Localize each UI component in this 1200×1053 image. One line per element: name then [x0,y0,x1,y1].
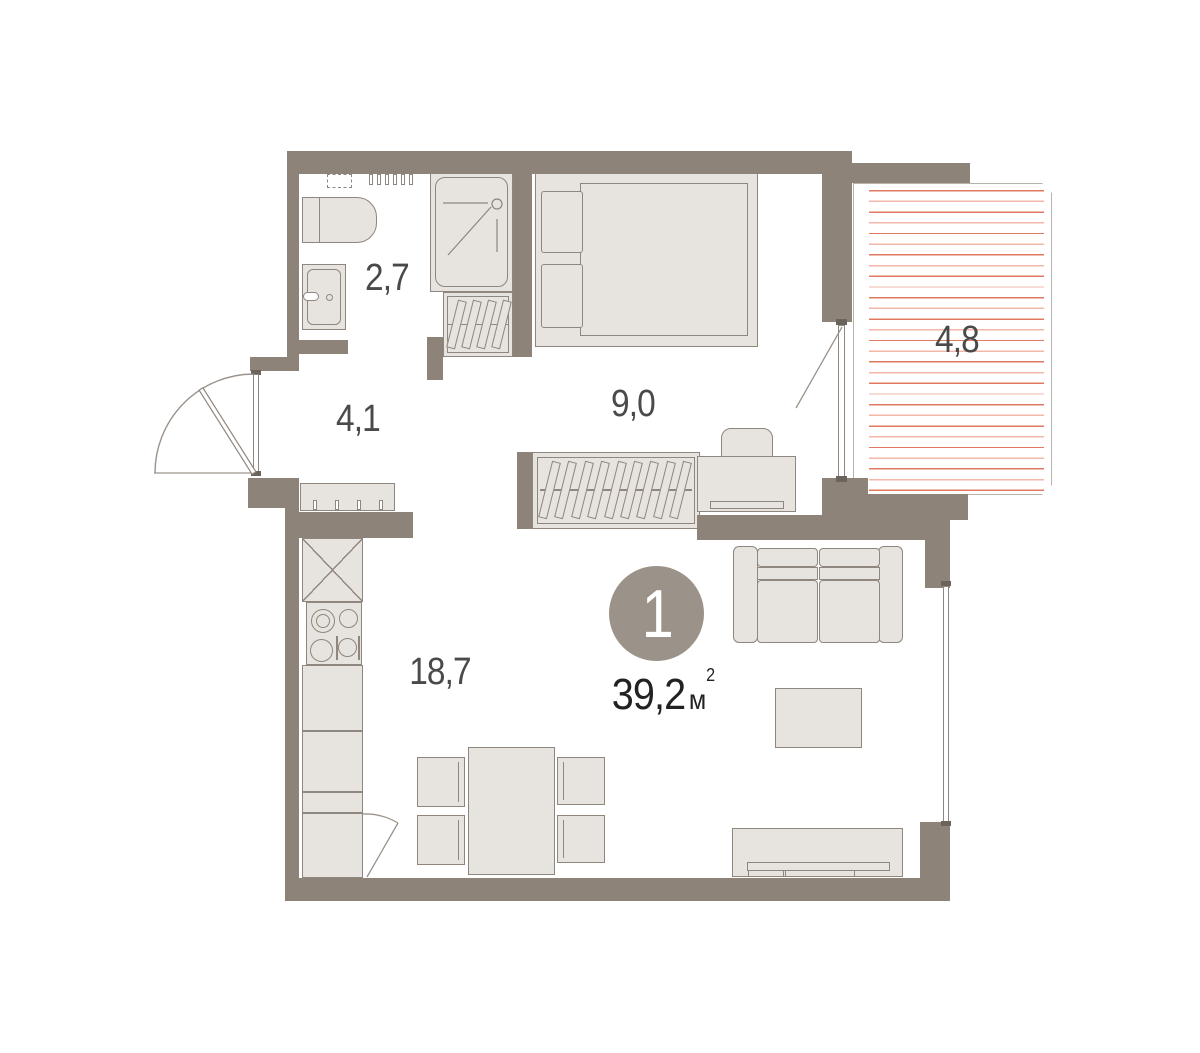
total-area-value: 39,2 [611,670,684,719]
wall-bottom [285,878,950,901]
kitchen-counter [302,665,363,731]
wall-left-upper [287,151,299,370]
kitchen-counter [302,792,363,813]
dining-chair [557,757,605,805]
room-area-label-hallway: 4,1 [303,399,413,439]
total-area-unit: м [688,684,705,715]
kitchen-door-arc [363,814,398,823]
sofa-armrest-left [733,546,758,643]
kitchen-counter [302,813,363,878]
sofa-back-row [757,567,818,580]
shower-tray [435,177,508,287]
burner [310,639,333,662]
window-cap-bottom [941,821,951,826]
sofa-seat [819,580,880,643]
dresser-handle [710,501,784,509]
burner-bracket [336,636,338,660]
balcony-door [838,325,845,477]
kitchen-counter [302,731,363,792]
dining-chair [557,815,605,863]
unit-number-badge: 1 [609,566,704,661]
shelf-items [452,300,506,349]
pillow-bottom [541,264,583,328]
wall-right-lower [920,822,950,880]
living-window [943,586,949,822]
wall-bathroom-stub [427,337,443,380]
wall-bathroom-bottom [287,340,348,354]
balcony-door-leaf [796,327,842,408]
kitchen-door-leaf [367,823,398,877]
entry-door-cap-bottom [251,471,261,476]
wall-entry-jog-top [250,357,299,371]
dining-chair [417,815,465,865]
coffee-table [775,688,862,748]
wall-balcony-stub [822,478,868,520]
burner-ring-inner [316,614,330,628]
sofa-back-cushion [757,548,818,567]
kitchen-cabinet-x [302,538,363,602]
room-area-label-bedroom: 9,0 [578,384,688,424]
wall-left-lower [285,478,299,900]
unit-number: 1 [641,580,671,648]
floor-plan: 2,7 4,1 9,0 4,8 18,7 1 39,2м2 [0,0,1200,1053]
toilet-bowl [319,197,377,243]
shoe-cabinet-feet [313,500,383,510]
entry-door-frame [253,374,259,473]
mattress [580,183,748,336]
sofa-back-cushion [819,548,880,567]
balcony-door-cap-bottom [836,476,847,482]
dining-table [468,747,555,875]
wall-balcony-top [848,163,970,183]
burner [339,609,358,628]
pillow-top [541,191,583,253]
burner [338,638,357,657]
tv-stand-foot [748,870,784,877]
sofa-armrest-right [878,546,903,643]
total-area: 39,2м2 [578,670,748,720]
wall-kitchen-hall [285,512,413,538]
wardrobe-hangers [545,461,685,519]
sink-faucet [303,292,319,301]
wall-bathroom-right [513,151,532,357]
room-area-label-living-kitchen: 18,7 [385,652,495,692]
washer-symbol [327,174,352,188]
entry-door-leaf [199,388,256,474]
tv-stand-foot [785,870,855,877]
dining-chair [417,757,465,807]
sofa-seat [757,580,818,643]
room-area-label-balcony: 4,8 [902,320,1012,360]
towel-radiator [369,174,413,185]
total-area-unit-sup: 2 [706,665,715,685]
entry-door-arc [155,374,253,473]
wall-top [287,151,848,174]
room-area-label-bathroom: 2,7 [332,258,442,298]
burner-bracket [358,636,360,660]
wall-living-top [697,515,950,540]
wall-bedroom-stub [517,452,532,529]
sofa-back-row [819,567,880,580]
